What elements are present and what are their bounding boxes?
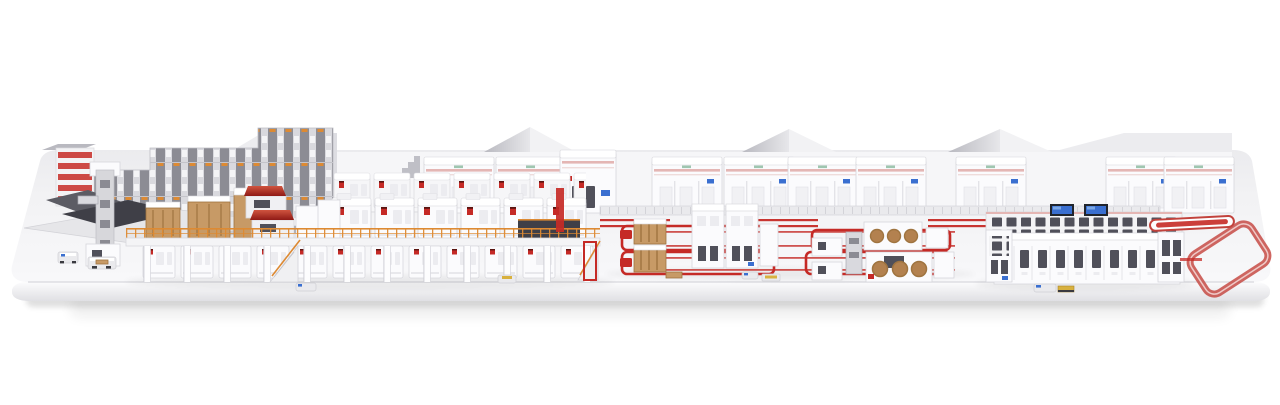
agv-cart	[1034, 284, 1056, 292]
pallet	[666, 272, 682, 278]
background-cabinet	[856, 157, 926, 213]
reel-machine	[864, 222, 922, 250]
loop-feed-line	[1180, 258, 1202, 261]
wooden-stacker	[634, 245, 666, 272]
render-canvas: 3D rendering of a complete corrugated bo…	[0, 0, 1280, 405]
background-cabinet	[788, 157, 858, 213]
background-cabinet	[1164, 157, 1234, 213]
control-screen	[1050, 204, 1074, 216]
end-cabinet	[1158, 232, 1184, 282]
side-unit	[926, 228, 948, 248]
wooden-stacker	[634, 219, 666, 244]
agv-cart	[742, 272, 758, 279]
red-lift-mast	[556, 188, 564, 232]
pallet-shuttle	[1058, 286, 1074, 292]
control-screen	[1084, 204, 1108, 216]
agv-cart	[88, 257, 116, 269]
agv-cart	[498, 275, 516, 283]
red-shuttle	[620, 230, 632, 239]
logistics-complex	[986, 204, 1184, 292]
converting-tower	[692, 204, 724, 268]
feeder-cabinet	[812, 262, 842, 280]
support-columns	[128, 246, 598, 282]
background-cabinet	[956, 157, 1026, 213]
side-unit	[760, 224, 778, 266]
pallet-shuttle	[762, 274, 780, 281]
feeder-cabinet	[812, 238, 842, 256]
agv-cart	[296, 283, 316, 291]
side-unit	[934, 252, 954, 278]
converting-tower	[726, 204, 758, 268]
agv-cart	[58, 252, 78, 263]
red-shuttle	[620, 258, 632, 267]
converting-cell-2	[806, 222, 954, 282]
plant-render: 3D rendering of a complete corrugated bo…	[0, 0, 1280, 405]
reel-machine	[866, 252, 932, 282]
